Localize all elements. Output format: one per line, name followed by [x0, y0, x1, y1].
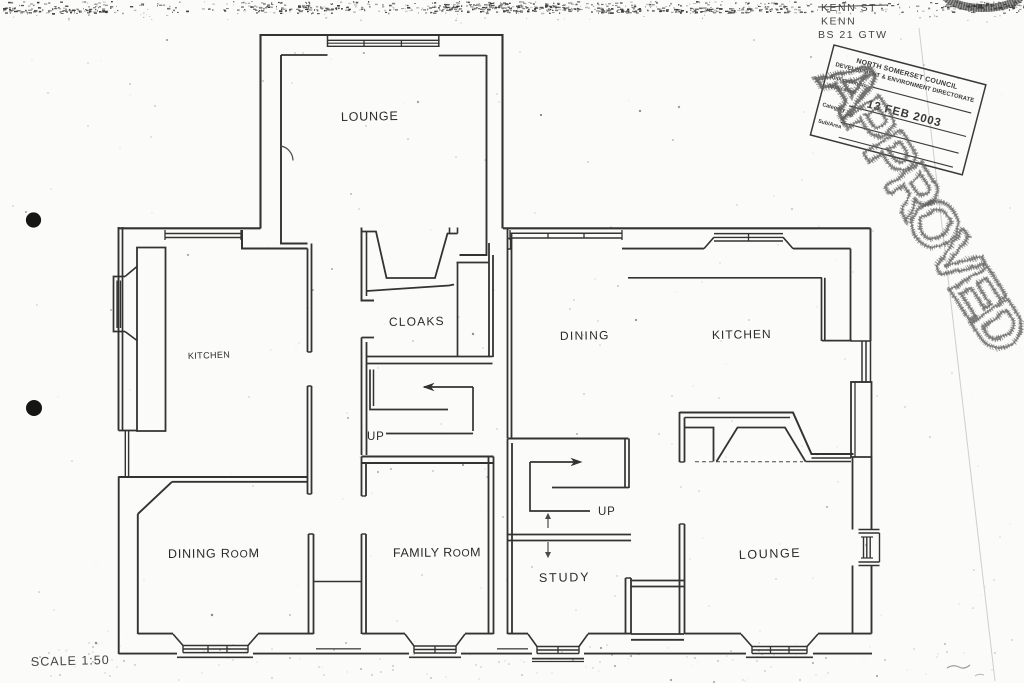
svg-text:CLOAKS: CLOAKS [389, 314, 445, 329]
svg-text:UP: UP [598, 506, 616, 518]
svg-text:KITCHEN: KITCHEN [712, 327, 772, 342]
svg-text:SCALE 1:50: SCALE 1:50 [31, 653, 110, 669]
svg-text:LOUNGE: LOUNGE [341, 109, 399, 124]
svg-text:KITCHEN: KITCHEN [188, 350, 231, 361]
svg-text:DINING: DINING [560, 328, 610, 343]
svg-text:BS 21 GTW: BS 21 GTW [818, 29, 888, 41]
svg-text:LOUNGE: LOUNGE [739, 546, 802, 562]
svg-text:KENN: KENN [821, 16, 856, 28]
svg-text:KENN ST: KENN ST [821, 2, 877, 14]
svg-text:STUDY: STUDY [539, 570, 591, 585]
svg-text:DINING ROOM: DINING ROOM [168, 546, 260, 561]
svg-text:UP: UP [367, 431, 385, 443]
svg-text:FAMILY ROOM: FAMILY ROOM [393, 545, 481, 560]
